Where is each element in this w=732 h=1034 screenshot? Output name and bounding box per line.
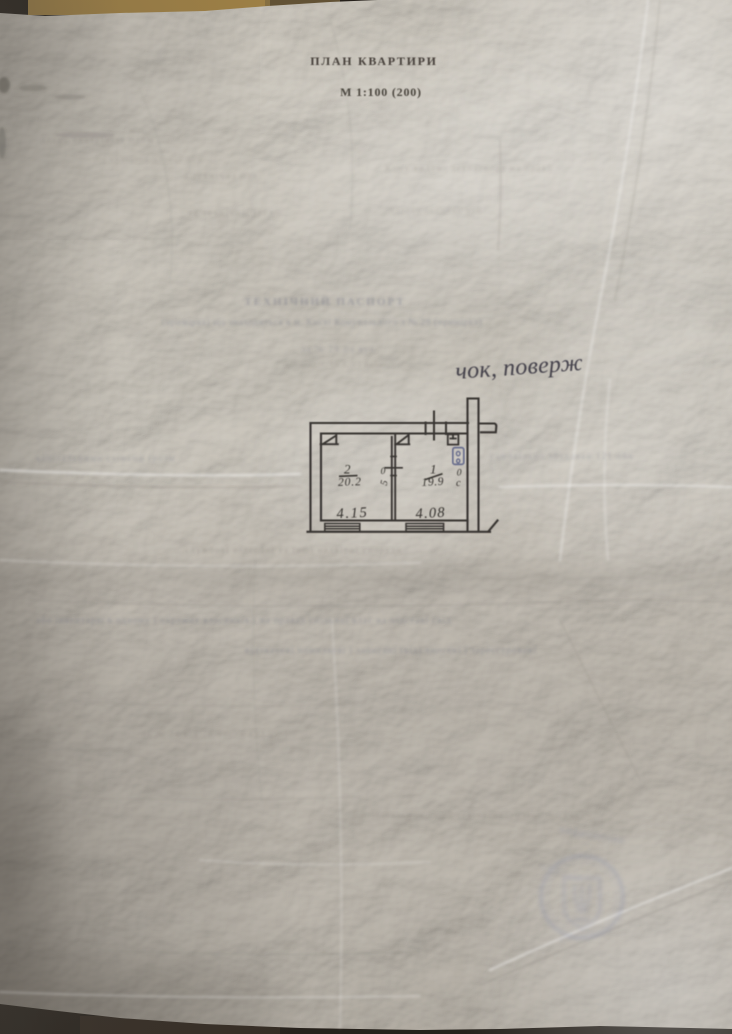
svg-text:4.15: 4.15 — [336, 505, 369, 523]
svg-text:Начальник бюро техінвентаризац: Начальник бюро техінвентаризації міськко… — [372, 810, 593, 821]
svg-text:0: 0 — [381, 467, 386, 477]
svg-text:0: 0 — [457, 468, 462, 478]
svg-text:відзначені помилкові і записан: відзначені помилкові і записані (від) вн… — [245, 645, 537, 656]
svg-text:адреса будинку вул: адреса будинку вул — [390, 205, 482, 215]
svg-text:20.2: 20.2 — [338, 476, 362, 489]
svg-text:за № 24 від 26 числа 193 р.: за № 24 від 26 числа 193 р. — [142, 730, 278, 740]
svg-text:вбудовані, 19 й, на балансі: вбудовані, 19 й, на балансі — [285, 359, 394, 369]
svg-text:2: 2 — [344, 462, 351, 477]
svg-text:нап.: нап. — [130, 125, 146, 135]
svg-text:капітальними стінами (розм: капітальними стінами (розм — [36, 453, 176, 464]
svg-text:ПЛАН КВАРТИРИ: ПЛАН КВАРТИРИ — [310, 54, 437, 68]
svg-text:Кому видано техпаспорт на прав: Кому видано техпаспорт на право — [385, 164, 553, 174]
svg-text:1: 1 — [430, 462, 437, 477]
svg-text:ТЕХНІЧНИЙ ПАСПОРТ: ТЕХНІЧНИЙ ПАСПОРТ — [244, 296, 405, 308]
svg-text:або інвентарю в одному і окрем: або інвентарю в одному і окремих власник… — [36, 615, 452, 626]
svg-text:самовільно збудован 121 обл: самовільно збудован 121 обл — [490, 451, 633, 462]
svg-text:М 1:100 (200): М 1:100 (200) — [340, 85, 422, 99]
svg-text:та технічні, звед: та технічні, звед — [188, 208, 274, 219]
svg-text:службові підсобні та інші надв: службові підсобні та інші надвірні спору… — [185, 545, 402, 556]
svg-text:с: с — [456, 478, 461, 489]
svg-text:і технічна пов.: і технічна пов. — [185, 171, 262, 182]
svg-text:19.9: 19.9 — [421, 476, 444, 489]
svg-text:4.08: 4.08 — [415, 505, 446, 523]
svg-text:за № 28 по вул.: за № 28 по вул. — [302, 345, 378, 355]
svg-text:по вказаній адресі дом: по вказаній адресі дом — [95, 154, 204, 164]
svg-text:підвали: підвали — [60, 471, 96, 481]
svg-text:(примірка) що знаходиться в м.: (примірка) що знаходиться в м. Києві Ком… — [162, 317, 483, 328]
